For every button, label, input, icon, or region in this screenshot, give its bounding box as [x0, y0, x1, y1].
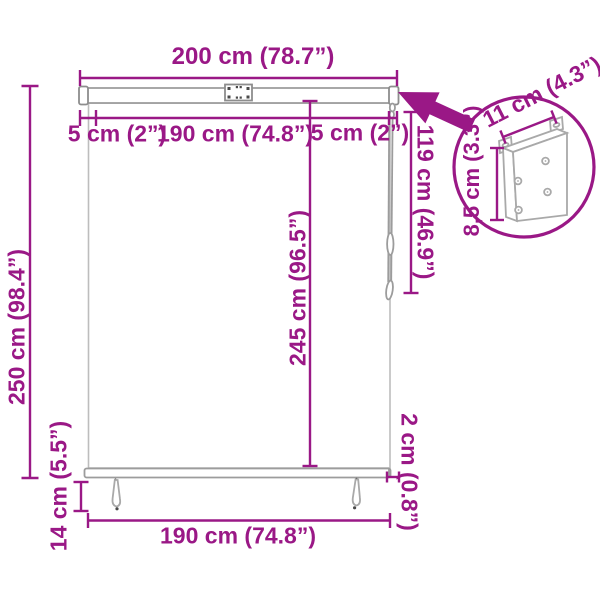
pull-tassel-left: [112, 479, 120, 511]
dim-label-total-height: 250 cm (98.4”): [6, 249, 29, 405]
center-bracket: [225, 85, 252, 101]
roller-end-cap-right: [389, 87, 399, 105]
bottom-bar: [85, 469, 391, 478]
dim-label-left-margin: 5 cm (2”): [68, 123, 166, 146]
dim-label-bracket-depth: 8,5 cm (3.3”): [461, 106, 483, 237]
dim-label-fabric-width: 190 cm (74.8”): [157, 123, 313, 146]
roller-end-cap-left: [79, 87, 88, 105]
pull-tassel-right: [353, 478, 360, 510]
dim-label-total-width: 200 cm (78.7”): [172, 45, 335, 69]
dim-label-fabric-height: 245 cm (96.5”): [287, 210, 310, 366]
dim-line-total-width: [80, 70, 397, 86]
dim-label-bottom-gap: 2 cm (0.8”): [398, 413, 421, 531]
dim-label-right-margin: 5 cm (2”): [311, 122, 409, 145]
dim-label-tassel-drop: 14 cm (5.5”): [48, 421, 71, 551]
dim-line-tassel-drop: [74, 482, 89, 511]
product-dimension-diagram: 200 cm (78.7”) 5 cm (2”) 190 cm (74.8”) …: [0, 0, 600, 600]
roller-blind-drawing: [79, 85, 399, 511]
dim-label-bottom-width: 190 cm (74.8”): [160, 525, 316, 548]
fabric-panel: [89, 103, 391, 468]
dim-label-cord-length: 119 cm (46.9”): [414, 125, 437, 280]
